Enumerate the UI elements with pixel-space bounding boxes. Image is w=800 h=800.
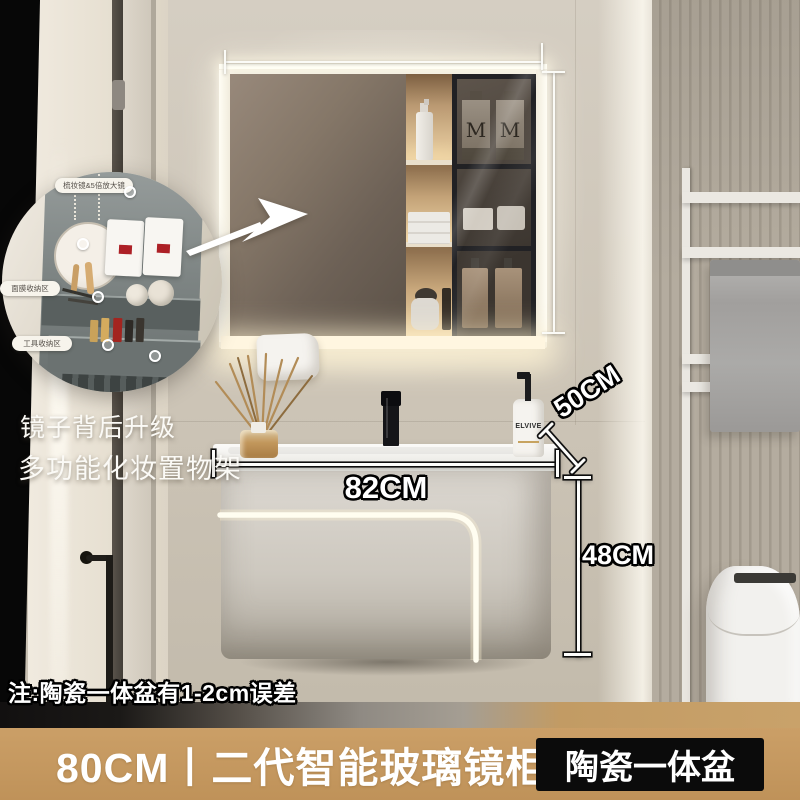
- glass-shelf-item: [463, 208, 493, 230]
- cosmetic-pouch: [143, 217, 184, 277]
- glass-door-bar: [452, 164, 536, 169]
- bottle-label: M: [466, 118, 486, 142]
- inset-label-mask-storage: 面膜收纳区: [0, 281, 60, 296]
- callout-dot: [102, 339, 114, 351]
- mirror-width-line: [225, 61, 543, 63]
- gray-towel: [710, 260, 800, 432]
- height-dimension-tick: [564, 476, 591, 479]
- folded-towels: [408, 212, 450, 244]
- mirror-height-tick: [542, 71, 565, 73]
- mirror-height-line: [553, 72, 555, 333]
- lipstick: [136, 318, 145, 342]
- shelf-board: [406, 160, 452, 165]
- towel-rack-bar: [682, 192, 800, 203]
- inset-label-tool-storage: 工具收纳区: [12, 336, 72, 351]
- amber-bottle: [462, 268, 488, 328]
- caption-line2: 多功能化妆置物架: [18, 447, 242, 486]
- faucet-highlight: [386, 398, 388, 438]
- callout-dot: [92, 291, 104, 303]
- cabinet-top-led: [219, 64, 547, 69]
- reed-diffuser: [240, 430, 278, 458]
- tolerance-note: 注:陶瓷一体盆有1-2cm误差: [8, 674, 297, 708]
- cabinet-right-led: [536, 70, 547, 342]
- dark-bottle: [442, 288, 451, 330]
- towel-fold: [710, 260, 800, 276]
- glass-shelf-item: [497, 206, 525, 230]
- toilet-control-slot: [734, 573, 796, 583]
- width-dimension-line: [213, 463, 558, 466]
- inset-label-magnifier: 梳妆镜&5倍放大镜: [55, 178, 133, 193]
- tile-grout-vertical: [575, 0, 576, 425]
- height-dimension-line: [577, 477, 580, 656]
- height-dimension-label: 48CM: [582, 540, 654, 571]
- glass-door-bar: [452, 246, 536, 251]
- powder-puff: [126, 284, 148, 306]
- lipstick: [90, 320, 99, 342]
- callout-dot: [77, 238, 89, 250]
- powder-puff: [148, 280, 174, 306]
- caption-line1: 镜子背后升级: [20, 408, 176, 444]
- product-photo: M M ELVIVE: [0, 0, 800, 800]
- height-dimension-tick: [564, 653, 591, 656]
- amber-bottle: [495, 268, 522, 328]
- banner-badge: 陶瓷一体盆: [536, 738, 764, 791]
- mirror-height-tick: [542, 332, 565, 334]
- speaker-body: [411, 298, 439, 330]
- counter-bottle-nozzle: [517, 372, 530, 379]
- toilet-lid-seam: [708, 588, 800, 636]
- width-dimension-label: 82CM: [336, 470, 436, 506]
- cosmetic-pouch: [105, 219, 145, 277]
- shampoo-bottle: M: [462, 100, 490, 160]
- mirror-width-tick: [224, 50, 226, 74]
- bottle-label: M: [500, 118, 520, 142]
- shower-door-handle: [112, 80, 125, 110]
- banner-title: 80CM丨二代智能玻璃镜柜: [56, 728, 547, 800]
- diffuser-cap: [251, 422, 266, 433]
- arrow-icon: [182, 188, 312, 260]
- shampoo-bottle: M: [496, 100, 524, 160]
- towel-rack-bar: [682, 247, 800, 258]
- lotion-bottle: [416, 112, 433, 160]
- lipstick: [125, 320, 134, 342]
- callout-dot: [149, 350, 161, 362]
- mirror-width-tick: [541, 43, 543, 70]
- lotion-nozzle: [424, 99, 429, 105]
- lipstick: [113, 318, 123, 342]
- callout-dot: [124, 186, 136, 198]
- faucet-head: [381, 391, 401, 406]
